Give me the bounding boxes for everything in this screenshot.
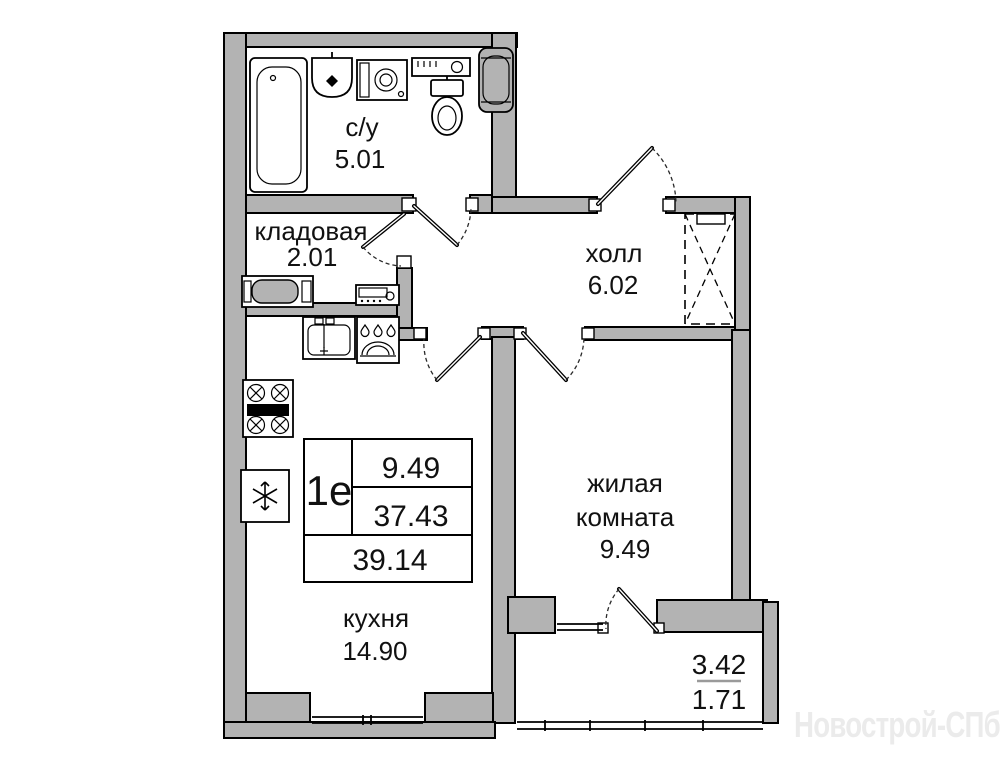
shelf-icon	[412, 58, 470, 76]
living-room-label-line1: жилая	[587, 468, 663, 498]
living-room-area: 9.49	[600, 534, 651, 564]
toilet-icon	[431, 76, 463, 135]
fridge-icon	[241, 470, 289, 522]
water-heater-icon	[479, 48, 513, 112]
living-room-window	[557, 624, 603, 630]
washing-machine-icon	[357, 60, 407, 100]
wall-kitchen-bottom-left	[246, 693, 310, 722]
wall-living-top	[585, 327, 735, 340]
cabinet-icon	[242, 276, 313, 307]
wall-top	[224, 33, 517, 47]
balcony-door-icon	[606, 589, 657, 631]
wall-living-right	[732, 330, 750, 600]
storage-area: 2.01	[287, 242, 338, 272]
bathroom-door-icon	[414, 206, 471, 245]
kitchen-area: 14.90	[342, 636, 407, 666]
kitchen-window	[312, 715, 423, 725]
living-room-door-icon	[523, 333, 584, 380]
watermark: Новострой-СПб	[794, 704, 1000, 745]
bathroom-label: с/у	[345, 112, 378, 142]
hall-label: холл	[586, 238, 643, 268]
wall-balcony-right	[763, 602, 778, 723]
washbasin-icon	[312, 52, 352, 97]
unit-type-value: 1е	[306, 467, 353, 514]
balcony-areas: 3.42 1.71	[692, 649, 747, 715]
bathtub-icon	[250, 58, 307, 192]
dishwasher-icon	[357, 317, 399, 363]
wall-kitchen-bottom-right	[425, 693, 493, 723]
living-room-label-line2: комната	[576, 502, 675, 532]
kitchen-label: кухня	[343, 603, 409, 633]
wall-kitchen-living-divider	[492, 337, 515, 723]
floor-plan-drawing: 1е 9.49 37.43 39.14 с/у 5.01 кладовая 2.…	[0, 0, 1005, 768]
total-area-value: 39.14	[352, 544, 427, 577]
wall-hall-top-left	[492, 197, 597, 213]
wall-balcony-top	[657, 600, 767, 632]
info-table: 1е 9.49 37.43 39.14	[304, 439, 472, 582]
stove-icon	[243, 380, 293, 437]
living-area-value: 9.49	[382, 452, 440, 485]
hall-area: 6.02	[588, 270, 639, 300]
apartment-area-value: 37.43	[373, 500, 448, 533]
wardrobe-placeholder	[685, 214, 735, 324]
wall-hall-right	[735, 197, 750, 340]
balcony-area-reduced: 1.71	[692, 684, 747, 715]
bathroom-area: 5.01	[335, 144, 386, 174]
kitchen-sink-icon	[303, 317, 355, 359]
wall-living-bottom-left	[508, 597, 555, 633]
electric-panel-icon	[356, 285, 399, 305]
floor-plan: 1е 9.49 37.43 39.14 с/у 5.01 кладовая 2.…	[0, 0, 1005, 768]
balcony-area-full: 3.42	[692, 649, 747, 680]
wall-bathroom-bottom	[246, 195, 413, 213]
wall-bottom-band	[224, 722, 495, 738]
kitchen-door-icon	[424, 337, 480, 380]
balcony-glazing	[517, 720, 763, 731]
entrance-door-icon	[598, 148, 676, 204]
